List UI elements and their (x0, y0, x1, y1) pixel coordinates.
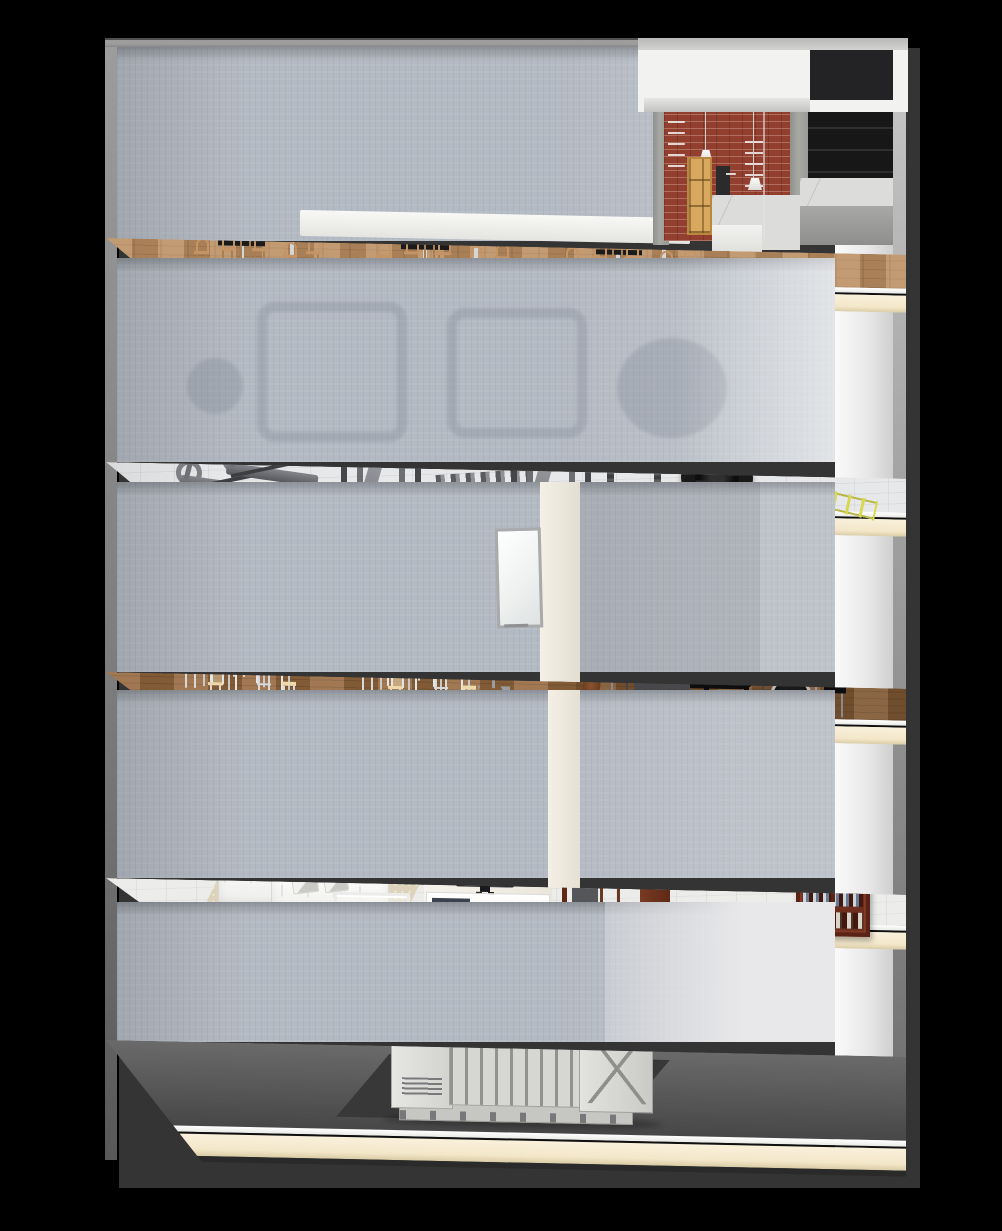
building (105, 38, 906, 1162)
lamp-cord (753, 112, 754, 178)
basement-back-wall (117, 902, 835, 1042)
cutaway-scene (0, 0, 1002, 1231)
partition-wall (540, 482, 580, 682)
wall-mural-rack (447, 308, 587, 438)
music-wall-shade (580, 482, 760, 672)
gym-back-wall (117, 258, 835, 462)
left-wall-edge (105, 47, 117, 1160)
roof-box (638, 38, 908, 112)
wall-mural-rack (257, 302, 407, 442)
menu-board-text (745, 138, 771, 200)
partition-wall (548, 690, 580, 890)
basement-light-wall (605, 902, 835, 1042)
wooden-shelf-unit (687, 157, 712, 235)
classroom-music-back-wall (117, 482, 835, 672)
wall-light-falloff (677, 258, 835, 462)
roof-dark-void (810, 50, 893, 100)
roof-beam (644, 98, 810, 112)
marble-counter-top (800, 178, 893, 206)
roof-top-band (638, 38, 908, 50)
glass-divider (763, 95, 765, 238)
whiteboard (495, 527, 544, 628)
basement-floor-slab (106, 1040, 906, 1177)
counter-base (800, 206, 893, 245)
living-study-back-wall (117, 690, 835, 878)
menu-word (726, 170, 740, 180)
wall-mural-plate (187, 358, 243, 414)
lamp-cord (705, 108, 706, 150)
